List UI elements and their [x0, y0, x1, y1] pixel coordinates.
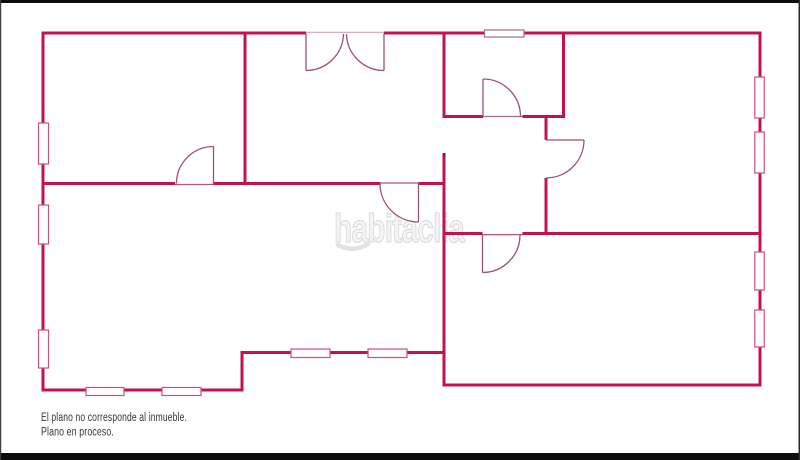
- svg-text:El plano no corresponde al inm: El plano no corresponde al inmueble.: [41, 412, 187, 424]
- svg-text:Plano en proceso.: Plano en proceso.: [41, 427, 114, 439]
- svg-text:habitaclia: habitaclia: [334, 207, 465, 251]
